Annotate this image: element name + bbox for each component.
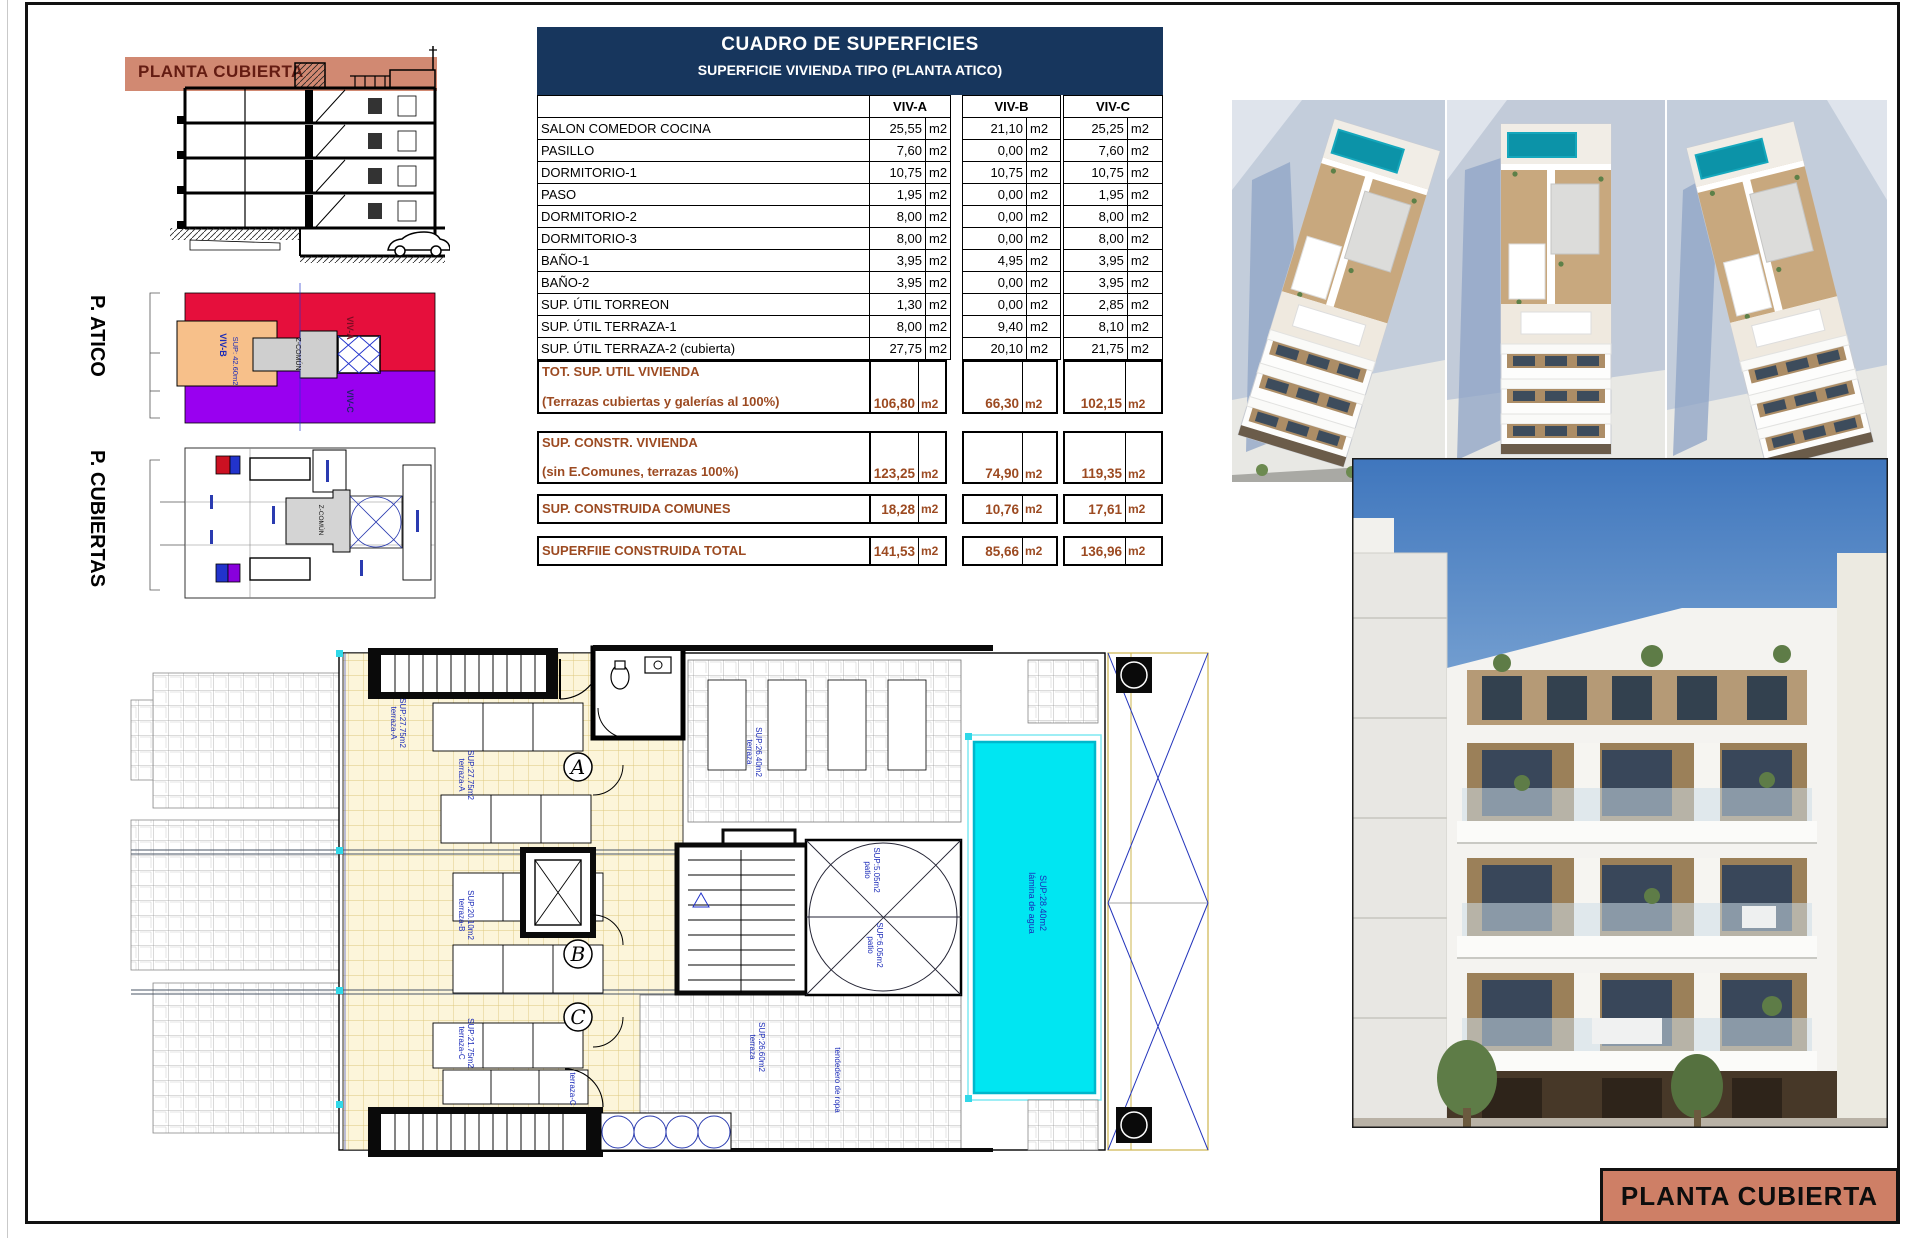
facade-render xyxy=(1352,458,1888,1128)
atico-viv-a-label: VIV-A xyxy=(345,316,355,340)
svg-text:SUP:27.75m2: SUP:27.75m2 xyxy=(398,698,407,748)
svg-text:SUP:5.05m2: SUP:5.05m2 xyxy=(872,847,881,893)
comunes-block-b: 10,76m2 xyxy=(962,494,1058,524)
table-group-vivb: VIV-B 21,10m2 0,00m2 10,75m2 0,00m2 0,00… xyxy=(962,95,1061,360)
page-edge-line xyxy=(7,0,8,1238)
svg-text:terraza-C: terraza-C xyxy=(568,1072,577,1106)
total-util-block-b: 66,30m2 xyxy=(962,360,1058,414)
svg-text:SUP:26.60m2: SUP:26.60m2 xyxy=(757,1022,766,1072)
col-header-viv-c: VIV-C xyxy=(1064,96,1163,118)
constr-vivienda-block-a: SUP. CONSTR. VIVIENDA(sin E.Comunes, ter… xyxy=(537,431,947,484)
svg-text:patio: patio xyxy=(866,936,875,954)
table-group-viva: VIV-A SALON COMEDOR COCINA25,55m2 PASILL… xyxy=(537,95,951,360)
svg-text:SUP:26.40m2: SUP:26.40m2 xyxy=(754,727,763,777)
svg-text:tendedero de ropa: tendedero de ropa xyxy=(833,1047,842,1113)
svg-text:terraza: terraza xyxy=(748,1035,757,1060)
row-label: SUP. ÚTIL TERRAZA-1 xyxy=(538,316,870,338)
svg-text:SUP:28.40m2: SUP:28.40m2 xyxy=(1038,875,1048,931)
surface-table-header: CUADRO DE SUPERFICIES SUPERFICIE VIVIEND… xyxy=(537,27,1163,95)
atico-viv-c-label: VIV-C xyxy=(345,389,355,413)
sheet-title-text: PLANTA CUBIERTA xyxy=(1621,1181,1878,1212)
row-label: DORMITORIO-2 xyxy=(538,206,870,228)
total-util-block-a: TOT. SUP. UTIL VIVIENDA(Terrazas cubiert… xyxy=(537,360,947,414)
cubiertas-zcomun-label: Z-COMÚN xyxy=(317,505,326,536)
surface-table: CUADRO DE SUPERFICIES SUPERFICIE VIVIEND… xyxy=(537,27,1163,572)
svg-text:SUP:6.05m2: SUP:6.05m2 xyxy=(875,922,884,968)
aerial-render-3 xyxy=(1667,100,1887,482)
car-silhouette xyxy=(388,232,450,256)
svg-text:patio: patio xyxy=(863,861,872,879)
row-label: PASO xyxy=(538,184,870,206)
aerial-render-1 xyxy=(1232,100,1445,482)
building-section-drawing xyxy=(150,28,450,263)
row-label: DORMITORIO-3 xyxy=(538,228,870,250)
svg-text:C: C xyxy=(570,1005,585,1029)
svg-text:SUP:20.10m2: SUP:20.10m2 xyxy=(466,890,475,940)
constr-vivienda-block-c: 119,35m2 xyxy=(1063,431,1163,484)
plan-right-zone xyxy=(1108,653,1208,1150)
plan-tank-circles xyxy=(601,1113,731,1150)
svg-text:terraza-A: terraza-A xyxy=(457,759,466,793)
table-subtitle: SUPERFICIE VIVIENDA TIPO (PLANTA ATICO) xyxy=(537,56,1163,78)
svg-text:SUP:21.75m2: SUP:21.75m2 xyxy=(466,1018,475,1068)
svg-text:terraza: terraza xyxy=(745,740,754,765)
svg-text:SUP:27.75m2: SUP:27.75m2 xyxy=(466,750,475,800)
svg-text:B: B xyxy=(570,942,586,966)
svg-text:terraza-C: terraza-C xyxy=(457,1026,466,1060)
svg-text:terraza-B: terraza-B xyxy=(457,899,466,932)
col-header-viv-a: VIV-A xyxy=(870,96,951,118)
total-construida-block-a: SUPERFIIE CONSTRUIDA TOTAL 141,53 m2 xyxy=(537,536,947,566)
plan-sheet: PLANTA CUBIERTA xyxy=(0,0,1920,1238)
col-header-viv-b: VIV-B xyxy=(963,96,1061,118)
row-label: PASILLO xyxy=(538,140,870,162)
atico-viv-b-sup: SUP: 42.60m2 xyxy=(231,337,240,386)
atico-viv-b-label: VIV-B xyxy=(218,333,228,357)
comunes-block-c: 17,61m2 xyxy=(1063,494,1163,524)
facade-floor-2 xyxy=(1457,858,1817,958)
row-label: BAÑO-1 xyxy=(538,250,870,272)
plan-left-tiled-terraces xyxy=(131,673,339,1133)
row-label: DORMITORIO-1 xyxy=(538,162,870,184)
row-label: BAÑO-2 xyxy=(538,272,870,294)
facade-floor-3 xyxy=(1457,973,1817,1071)
total-construida-block-b: 85,66m2 xyxy=(962,536,1058,566)
sheet-title-block: PLANTA CUBIERTA xyxy=(1600,1168,1899,1224)
plan-patio xyxy=(806,840,961,995)
table-title: CUADRO DE SUPERFICIES xyxy=(537,27,1163,56)
row-label: SALON COMEDOR COCINA xyxy=(538,118,870,140)
constr-vivienda-block-b: 74,90m2 xyxy=(962,431,1058,484)
total-util-block-c: 102,15m2 xyxy=(1063,360,1163,414)
svg-text:terraza-A: terraza-A xyxy=(389,707,398,741)
atico-zcomun-label: Z-COMÚN xyxy=(294,337,303,370)
stair-core xyxy=(677,845,807,993)
comunes-block-a: SUP. CONSTRUIDA COMUNES 18,28 m2 xyxy=(537,494,947,524)
row-label: SUP. ÚTIL TERRAZA-2 (cubierta) xyxy=(538,338,870,360)
svg-text:A: A xyxy=(569,755,585,779)
atico-mini-plan: VIV-A VIV-B SUP: 42.60m2 VIV-C Z-COMÚN xyxy=(100,283,445,433)
table-group-vivc: VIV-C 25,25m2 7,60m2 10,75m2 1,95m2 8,00… xyxy=(1063,95,1163,360)
cubiertas-mini-plan: Z-COMÚN xyxy=(100,440,445,608)
plan-top-room xyxy=(593,648,683,738)
facade-floor-1 xyxy=(1457,743,1817,843)
svg-text:lámina de agua: lámina de agua xyxy=(1027,872,1037,934)
aerial-render-2 xyxy=(1447,100,1665,482)
total-construida-block-c: 136,96m2 xyxy=(1063,536,1163,566)
row-label: SUP. ÚTIL TORREON xyxy=(538,294,870,316)
roof-plan-drawing: A B C terraza-A SUP:27.75m2 terraza-A SU… xyxy=(123,645,1215,1160)
